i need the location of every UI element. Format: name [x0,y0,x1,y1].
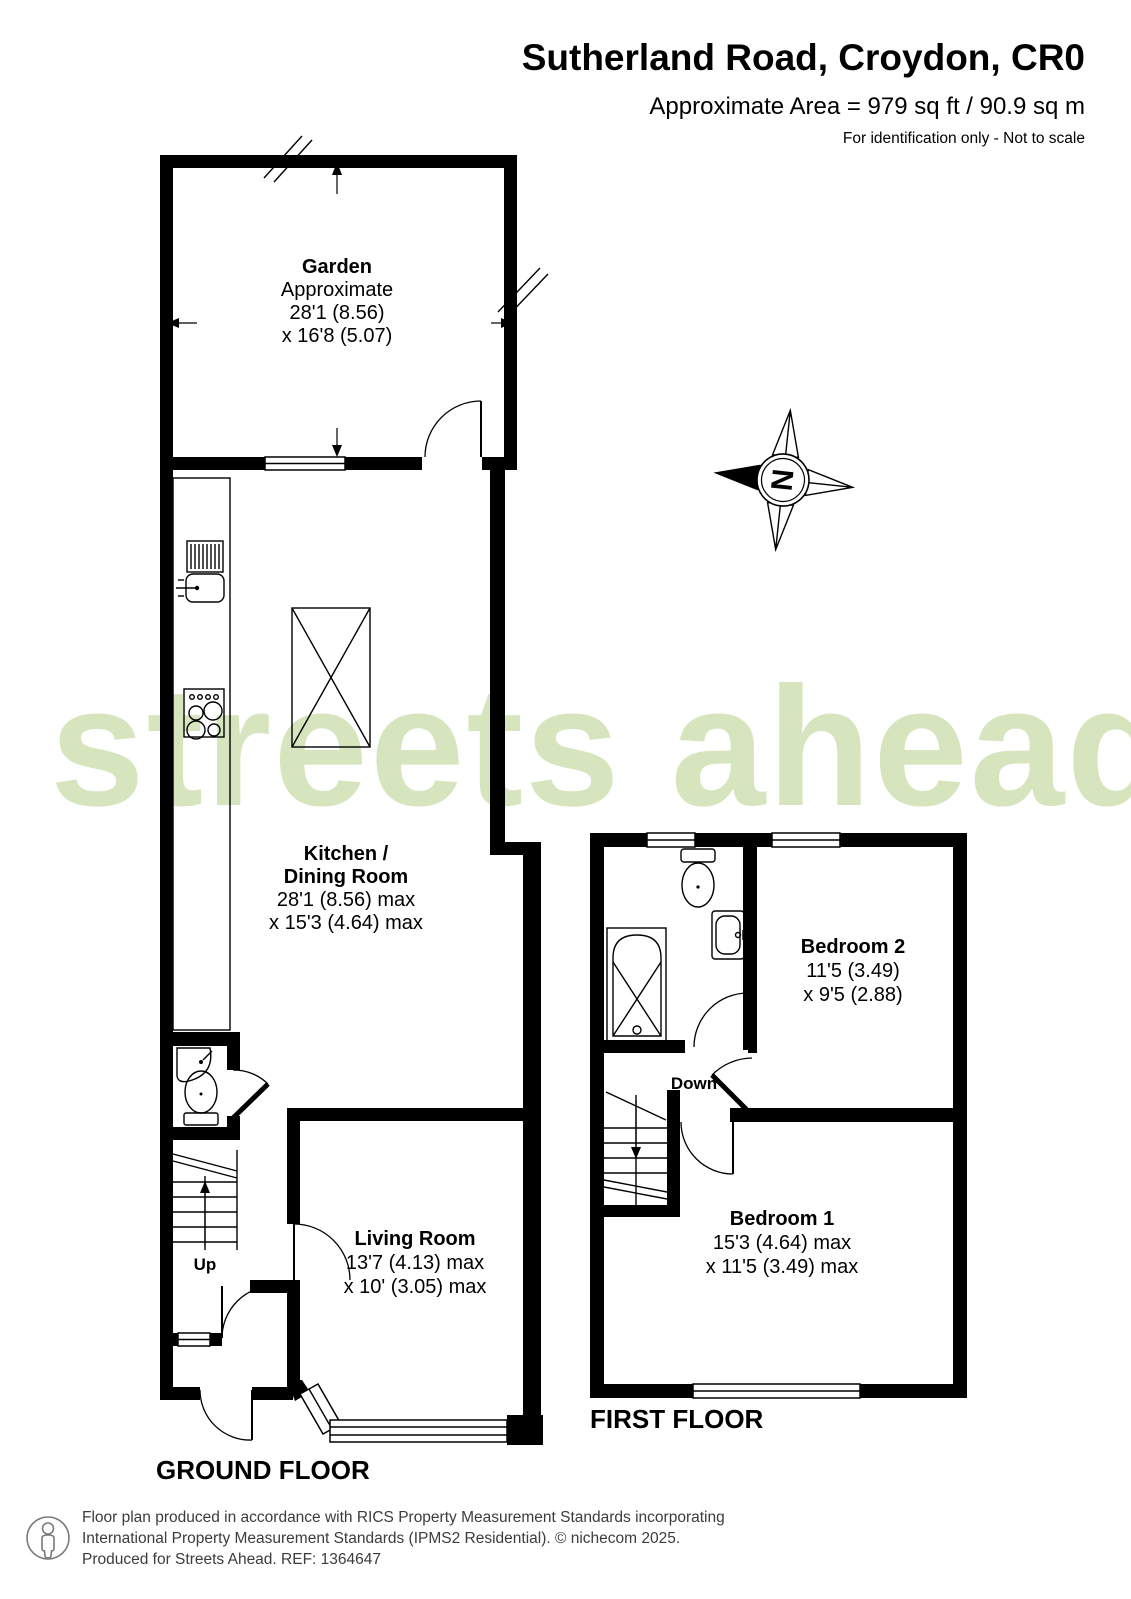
stairs-up [173,1150,237,1250]
bedroom1-door [681,1122,733,1174]
living-room-label: Living Room [354,1228,475,1250]
bedroom2-door [712,1058,752,1115]
front-door [200,1390,252,1440]
floorplan-drawing: Garden Approximate 28'1 (8.56) x 16'8 (5… [0,0,1131,1599]
bedroom2-dim-2: x 9'5 (2.88) [803,984,902,1006]
approximate-area: Approximate Area = 979 sq ft / 90.9 sq m [649,93,1085,121]
footer: Floor plan produced in accordance with R… [82,1507,725,1570]
bedroom1-dim-1: 15'3 (4.64) max [713,1232,851,1254]
compass-rose: N [706,403,860,557]
garden-note: Approximate [281,279,393,301]
stairs-down-label: Down [671,1074,717,1093]
bathroom-basin [712,911,744,959]
kitchen-counter [173,478,230,1030]
bathtub [607,928,666,1042]
first-floor-plan: Bedroom 2 11'5 (3.49) x 9'5 (2.88) Bedro… [590,833,967,1434]
living-room-dim-2: x 10' (3.05) max [344,1276,487,1298]
first-floor-walls [590,833,967,1398]
ground-floor-plan: Garden Approximate 28'1 (8.56) x 16'8 (5… [156,136,548,1485]
garden-dim-1: 28'1 (8.56) [290,302,385,324]
garden-window [265,457,345,470]
page-title: Sutherland Road, Croydon, CR0 [522,38,1085,79]
living-room-dim-1: 13'7 (4.13) max [346,1252,484,1274]
footer-line-3: Produced for Streets Ahead. REF: 1364647 [82,1549,725,1570]
porch-window [178,1333,210,1346]
kitchen-label-2: Dining Room [284,866,408,888]
wc-basin [177,1048,212,1082]
north-pointer [712,460,760,491]
first-floor-title: FIRST FLOOR [590,1404,764,1434]
bedroom1-label: Bedroom 1 [730,1208,834,1230]
bedroom1-dim-2: x 11'5 (3.49) max [706,1256,858,1278]
wc-toilet [184,1071,218,1125]
bathroom-door [694,993,748,1047]
producer-logo-icon [25,1514,71,1562]
kitchen-island [292,608,370,747]
wc-door [233,1070,268,1118]
disclaimer-text: For identification only - Not to scale [843,130,1085,148]
garden-dim-2: x 16'8 (5.07) [282,325,393,347]
kitchen-hob [184,689,224,739]
bay-window [287,1380,543,1445]
kitchen-label-1: Kitchen / [304,843,389,865]
ground-floor-title: GROUND FLOOR [156,1455,370,1485]
floorplan-page: streets ahead Sutherland Road, Croydon, … [0,0,1131,1599]
footer-line-1: Floor plan produced in accordance with R… [82,1507,725,1528]
footer-line-2: International Property Measurement Stand… [82,1528,725,1549]
wc [160,1032,268,1140]
stairs-up-label: Up [194,1255,217,1274]
bathroom-toilet [681,849,715,907]
header: Sutherland Road, Croydon, CR0 Approximat… [522,38,1085,148]
bathroom [607,849,748,1047]
entrance-hall [160,1280,293,1440]
kitchen-dim-1: 28'1 (8.56) max [277,889,415,911]
hall-door [222,1286,274,1338]
bedroom2-label: Bedroom 2 [801,936,905,958]
kitchen-sink [176,541,224,602]
stairs-down [604,1092,667,1205]
garden-label: Garden [302,256,372,278]
garden-door [425,401,481,457]
kitchen-dim-2: x 15'3 (4.64) max [269,912,423,934]
compass-north-letter: N [765,467,800,492]
living-room-door [294,1224,350,1280]
bedroom2-dim-1: 11'5 (3.49) [806,960,900,982]
